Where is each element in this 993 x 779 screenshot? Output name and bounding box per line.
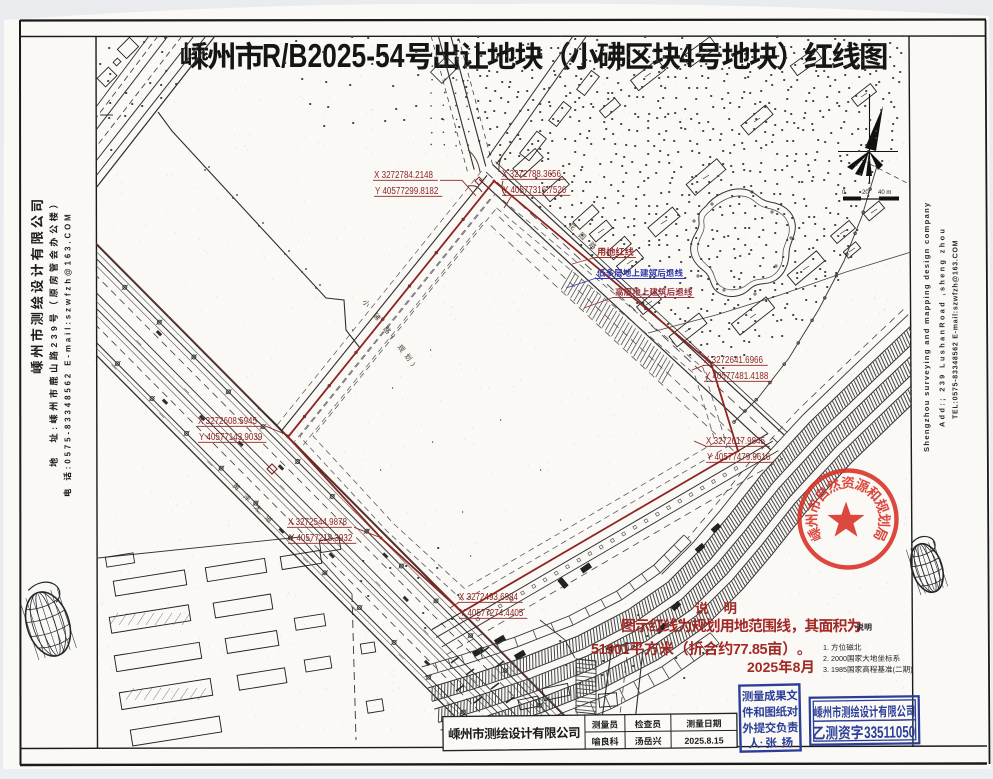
svg-text:X 3272493.6984: X 3272493.6984 [459, 592, 518, 603]
svg-text:Y 40577299.8182: Y 40577299.8182 [375, 186, 438, 197]
svg-text::: : [759, 738, 762, 750]
svg-text:): ) [910, 665, 912, 674]
svg-text:3. 1985: 3. 1985 [823, 665, 847, 674]
svg-text:2025: 2025 [747, 659, 778, 675]
svg-text:Y 40577218.3932: Y 40577218.3932 [289, 533, 352, 544]
svg-text:Shengzhou surveying and mappi: Shengzhou surveying and mapping design c… [922, 201, 931, 452]
svg-text:Y 40577481.4188: Y 40577481.4188 [705, 371, 769, 382]
svg-text:X 3272617.9845: X 3272617.9845 [706, 436, 765, 447]
svg-text:X 3272784.2148: X 3272784.2148 [374, 170, 433, 181]
svg-text::0575-83348562 E-mail:szwfz: :0575-83348562 E-mail:szwfzh@163.COM [64, 211, 73, 469]
svg-text:40 m: 40 m [878, 190, 891, 196]
svg-text:X 3272544.9878: X 3272544.9878 [288, 517, 347, 528]
svg-text:Y 40577143.9039: Y 40577143.9039 [199, 432, 262, 443]
svg-text:X 3272641.6966: X 3272641.6966 [704, 355, 763, 366]
svg-text:X 3272608.5945: X 3272608.5945 [198, 416, 257, 427]
svg-text:33511050: 33511050 [864, 723, 915, 742]
svg-text:1.: 1. [823, 643, 829, 652]
svg-text:X 3272788.3656: X 3272788.3656 [502, 169, 561, 180]
svg-text:Y 40577316.7526: Y 40577316.7526 [503, 185, 567, 196]
svg-text:Y 40577479.9616: Y 40577479.9616 [707, 452, 771, 463]
svg-text:239: 239 [49, 323, 59, 348]
svg-text:Y 40577274.4405: Y 40577274.4405 [460, 608, 524, 619]
svg-text:77.85: 77.85 [733, 642, 768, 658]
svg-text:TEL:0575-83348562 E-mail:s: TEL:0575-83348562 E-mail:szwfzh@163.COM [953, 240, 960, 419]
svg-text:2025.8.15: 2025.8.15 [684, 735, 723, 745]
svg-text:51901: 51901 [591, 642, 630, 658]
svg-text::: : [49, 424, 59, 430]
svg-text:Add:; 239 LushanRoad ,sheng z: Add:; 239 LushanRoad ,sheng zhou [938, 227, 947, 427]
svg-text:2. 2000: 2. 2000 [823, 654, 847, 663]
svg-text:8: 8 [793, 659, 801, 675]
